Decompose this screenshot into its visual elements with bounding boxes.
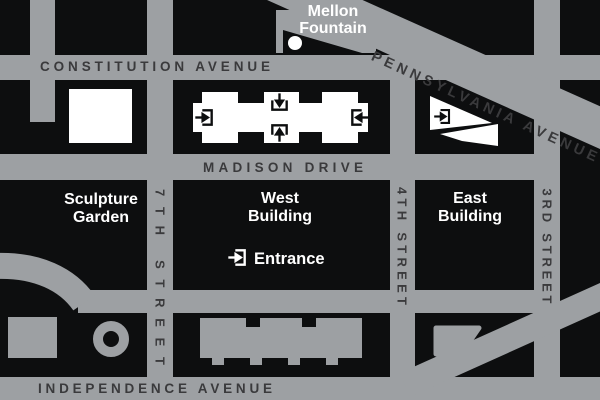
castle-building-footprint — [200, 318, 362, 365]
svg-text:Fountain: Fountain — [299, 20, 367, 37]
entrance-label: Entrance — [254, 250, 325, 268]
nga-area-map: CONSTITUTION AVENUE MADISON DRIVE INDEPE… — [0, 0, 600, 400]
independence-avenue-label: INDEPENDENCE AVENUE — [38, 381, 272, 396]
svg-text:West: West — [261, 190, 300, 207]
street-madison-drive — [0, 154, 560, 180]
pavilion-footprint — [69, 89, 132, 143]
svg-text:Mellon: Mellon — [308, 3, 359, 20]
svg-text:Garden: Garden — [73, 209, 129, 226]
map-canvas: CONSTITUTION AVENUE MADISON DRIVE INDEPE… — [0, 0, 600, 400]
svg-text:Building: Building — [438, 208, 502, 225]
svg-text:East: East — [453, 190, 487, 207]
svg-text:Sculpture: Sculpture — [64, 191, 138, 208]
third-street-label: 3RD STREET — [540, 189, 555, 304]
constitution-avenue-label: CONSTITUTION AVENUE — [40, 59, 270, 74]
mellon-fountain-label: Mellon Fountain — [299, 3, 367, 37]
mellon-fountain-dot — [288, 36, 302, 50]
sculpture-garden-label: Sculpture Garden — [64, 191, 138, 226]
svg-text:Building: Building — [248, 208, 312, 225]
square-footprint — [8, 317, 57, 358]
fourth-street-label: 4TH STREET — [395, 187, 410, 305]
